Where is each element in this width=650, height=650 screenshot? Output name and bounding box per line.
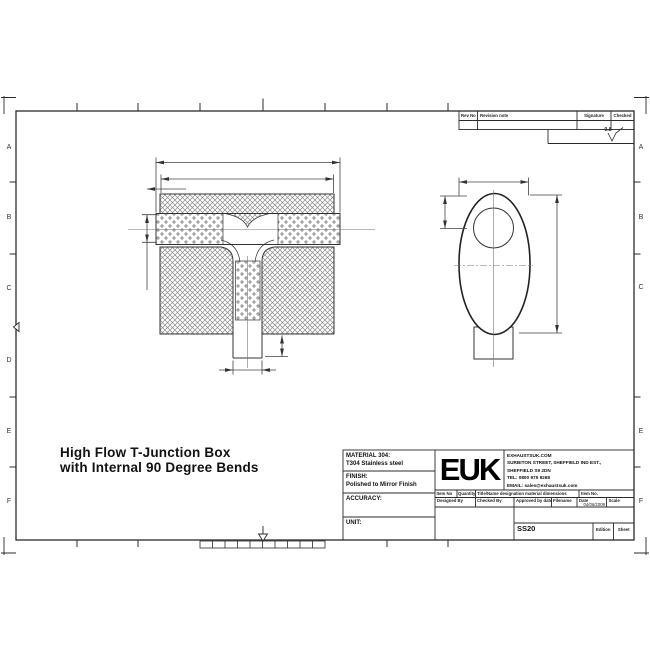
accuracy-label: ACCURACY: bbox=[346, 496, 382, 503]
trim-mark-bottom-left bbox=[1, 537, 16, 555]
designation-header: Title/Name designation material dimensio… bbox=[477, 492, 567, 497]
scale-bar bbox=[200, 541, 325, 548]
trim-mark-top-right bbox=[634, 96, 649, 114]
item-no2-header: Item No. bbox=[581, 492, 598, 497]
lower-block-left bbox=[160, 247, 233, 334]
side-view bbox=[459, 194, 530, 360]
zone-letter-right-a: A bbox=[636, 144, 646, 152]
address-line-1: EXHAUSTSUK.COM bbox=[507, 452, 633, 459]
address-line-5: EMAIL: sales@exhaustsuk.com bbox=[507, 482, 633, 489]
drawing-title-line1: High Flow T-Junction Box bbox=[60, 446, 231, 460]
designed-by-header: Designed By bbox=[437, 499, 463, 504]
zone-letter-left-e: E bbox=[4, 428, 14, 436]
zone-letter-left-b: B bbox=[4, 214, 14, 222]
drawing-geometry bbox=[0, 0, 650, 650]
finish-label: FINISH: bbox=[346, 474, 368, 481]
company-address: EXHAUSTSUK.COM SURBITON STREET, SHEFFIEL… bbox=[507, 452, 633, 489]
edition-label: Edition bbox=[593, 528, 614, 533]
lower-block-right bbox=[262, 247, 334, 334]
sheet-label: Sheet bbox=[614, 528, 635, 533]
material-value: T304 Stainless steel bbox=[346, 461, 403, 468]
address-line-4: TEL: 0800 975 9268 bbox=[507, 474, 633, 481]
company-logo: EUK bbox=[435, 450, 504, 490]
finish-value: Polished to Mirror Finish bbox=[346, 482, 417, 489]
centering-mark-bottom bbox=[259, 526, 268, 541]
address-line-2: SURBITON STREET, SHEFFIELD IND EST., bbox=[507, 459, 633, 466]
revision-col-signature: Signature bbox=[577, 114, 611, 119]
address-line-3: SHEFFIELD S9 2DN bbox=[507, 467, 633, 474]
zone-letter-left-a: A bbox=[4, 144, 14, 152]
zone-letter-right-f: F bbox=[636, 498, 646, 506]
drawing-title-line2: with Internal 90 Degree Bends bbox=[60, 461, 259, 475]
zone-letter-right-b: B bbox=[636, 214, 646, 222]
zone-letter-right-e: E bbox=[636, 428, 646, 436]
zone-letter-left-f: F bbox=[4, 498, 14, 506]
zone-ticks-top bbox=[77, 99, 448, 112]
trim-mark-top-left bbox=[1, 96, 16, 114]
revision-col-rev-no: Rev No bbox=[461, 114, 476, 119]
tube-perforated-right bbox=[278, 214, 340, 245]
surface-finish-value: 0.8 bbox=[600, 128, 616, 134]
zone-letter-left-d: D bbox=[4, 357, 14, 365]
tube-perforated-left bbox=[156, 214, 223, 245]
revision-col-note: Revision note bbox=[480, 114, 508, 119]
top-wall-hatch bbox=[160, 194, 334, 214]
date-value: 04/06/2009 bbox=[577, 503, 605, 508]
quantity-header: Quantity bbox=[458, 492, 475, 497]
front-view bbox=[156, 194, 340, 358]
zone-letter-left-c: C bbox=[4, 285, 14, 293]
zone-ticks-left bbox=[10, 182, 17, 467]
item-no-header: Item No bbox=[437, 492, 453, 497]
scale-header: Scale bbox=[609, 499, 620, 504]
drawing-sheet: A B C D E F A B C E F Rev No Revision no… bbox=[0, 0, 650, 650]
trim-mark-bottom-right bbox=[634, 537, 649, 555]
checked-by-header: Checked By bbox=[477, 499, 502, 504]
unit-label: UNIT: bbox=[346, 520, 361, 527]
filename-header: Filename bbox=[553, 499, 572, 504]
zone-letter-right-c: C bbox=[636, 284, 646, 292]
part-number: SS20 bbox=[517, 525, 535, 534]
material-label: MATERIAL 304: bbox=[346, 453, 390, 460]
zone-ticks-right bbox=[634, 182, 641, 467]
revision-col-checked: Checked bbox=[611, 114, 634, 119]
approved-by-header: Approved by date bbox=[516, 499, 552, 504]
